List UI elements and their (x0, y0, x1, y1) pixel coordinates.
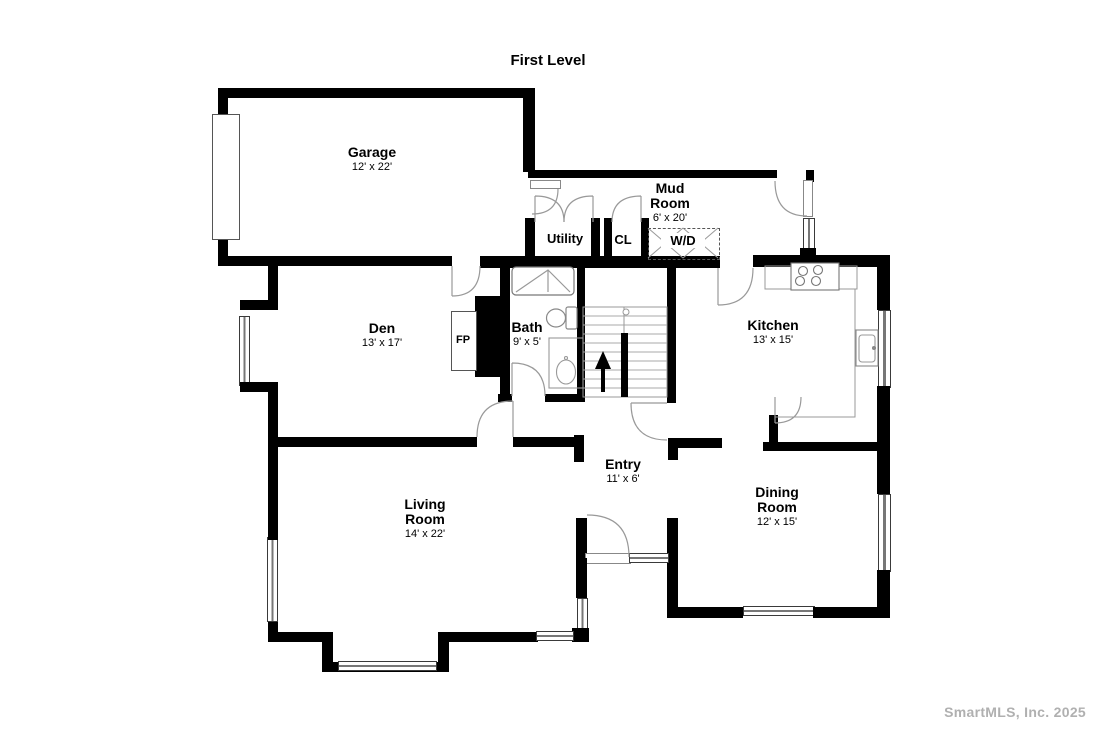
door-arc (477, 401, 513, 437)
wall (218, 88, 535, 98)
room-name: Living Room (388, 497, 462, 527)
wall (278, 437, 477, 447)
room-label-utility: Utility (521, 231, 609, 246)
room-label-den: Den 13' x 17' (325, 321, 439, 349)
wall (513, 437, 583, 447)
wall (667, 518, 678, 618)
window (878, 494, 891, 572)
page-title: First Level (428, 52, 668, 69)
wall (763, 442, 877, 451)
window (239, 316, 250, 386)
wall (753, 255, 890, 267)
wall (577, 256, 585, 402)
room-label-bath: Bath 9' x 5' (498, 320, 556, 348)
room-dims: 6' x 20' (641, 212, 699, 224)
door-arc (512, 363, 545, 396)
stairs (583, 307, 667, 397)
room-name: Dining Room (740, 485, 814, 515)
room-label-washer-dryer: W/D (661, 233, 705, 248)
newel-post (623, 309, 629, 315)
room-label-dining-room: Dining Room 12' x 15' (740, 485, 814, 528)
wall (528, 170, 777, 178)
door-arc (452, 266, 480, 296)
stair-divider-wall (621, 333, 628, 397)
up-arrow-icon (595, 351, 611, 392)
wall (769, 415, 778, 447)
room-label-closet: CL (598, 232, 648, 247)
front-door-arc (587, 515, 629, 557)
wall (877, 258, 890, 310)
room-name: Bath (498, 320, 556, 335)
room-label-living-room: Living Room 14' x 22' (388, 497, 462, 540)
door-arc (532, 189, 558, 214)
wall (268, 440, 278, 540)
wall (268, 389, 278, 444)
room-name: Mud Room (641, 181, 699, 211)
room-dims: 14' x 22' (388, 528, 462, 540)
room-name: Utility (521, 231, 609, 246)
wall (576, 558, 587, 598)
door-arc (612, 196, 641, 222)
watermark: SmartMLS, Inc. 2025 (944, 704, 1086, 720)
wall (576, 518, 587, 558)
door-arc (718, 268, 753, 305)
kitchen-sink-icon (856, 330, 878, 366)
stair-treads (583, 316, 667, 388)
room-label-kitchen: Kitchen 13' x 15' (716, 318, 830, 346)
window (743, 606, 815, 616)
window (267, 537, 278, 622)
room-dims: 11' x 6' (566, 473, 680, 485)
door-leaf (803, 180, 813, 217)
room-name: Den (325, 321, 439, 336)
room-label-garage: Garage 12' x 22' (315, 145, 429, 173)
wall (240, 300, 278, 310)
wall (545, 394, 585, 402)
room-name: W/D (661, 233, 705, 248)
window (338, 661, 437, 671)
shower-icon (512, 267, 574, 295)
window (577, 598, 588, 630)
wall (667, 607, 743, 618)
wall (877, 386, 890, 494)
door-arc (631, 403, 667, 440)
room-dims: 12' x 22' (315, 161, 429, 173)
wall (572, 628, 589, 642)
window (629, 553, 669, 563)
window (803, 218, 815, 252)
door-leaf (530, 180, 561, 189)
room-label-mud-room: Mud Room 6' x 20' (641, 181, 699, 224)
room-name: Kitchen (716, 318, 830, 333)
room-name: Entry (566, 457, 680, 472)
stairs-outline (583, 307, 667, 397)
garage-door (212, 114, 240, 240)
stove-icon (791, 263, 839, 290)
room-dims: 9' x 5' (498, 336, 556, 348)
room-label-fireplace: FP (451, 334, 475, 346)
door-arc (535, 196, 564, 222)
room-dims: 13' x 15' (716, 334, 830, 346)
door-arc (775, 397, 801, 423)
room-name: CL (598, 232, 648, 247)
window (878, 310, 891, 388)
room-name: Garage (315, 145, 429, 160)
wall (448, 632, 538, 642)
window (536, 631, 574, 641)
wall (523, 98, 535, 172)
fixtures-layer (0, 0, 1100, 733)
wall (218, 256, 452, 266)
room-dims: 13' x 17' (325, 337, 439, 349)
wall (667, 263, 676, 403)
door-arc (564, 196, 593, 222)
front-door-leaf (585, 553, 631, 564)
wall (498, 394, 512, 402)
room-label-entry: Entry 11' x 6' (566, 457, 680, 485)
room-dims: 12' x 15' (740, 516, 814, 528)
floor-plan: First Level SmartMLS, Inc. 2025 (0, 0, 1100, 733)
wall (813, 607, 890, 618)
